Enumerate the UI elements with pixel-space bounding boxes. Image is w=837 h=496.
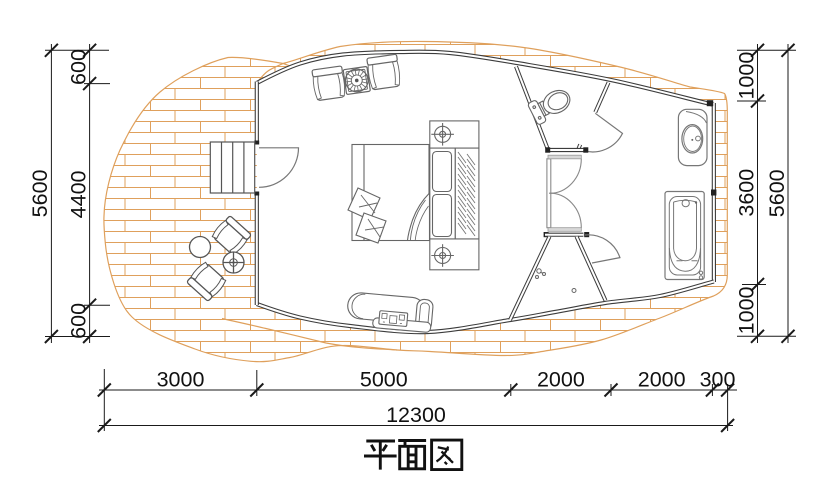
svg-text:5000: 5000 xyxy=(360,368,408,392)
svg-text:600: 600 xyxy=(67,49,91,85)
svg-text:5600: 5600 xyxy=(765,169,789,217)
svg-text:2000: 2000 xyxy=(638,368,686,392)
svg-text:300: 300 xyxy=(700,368,736,392)
svg-text:2000: 2000 xyxy=(537,368,585,392)
svg-text:3600: 3600 xyxy=(735,169,759,217)
svg-text:600: 600 xyxy=(67,303,91,339)
svg-text:12300: 12300 xyxy=(386,403,446,427)
svg-text:5600: 5600 xyxy=(28,169,52,217)
svg-text:1000: 1000 xyxy=(735,52,759,100)
svg-text:1000: 1000 xyxy=(735,286,759,334)
svg-text:4400: 4400 xyxy=(67,170,91,218)
svg-text:3000: 3000 xyxy=(157,368,205,392)
